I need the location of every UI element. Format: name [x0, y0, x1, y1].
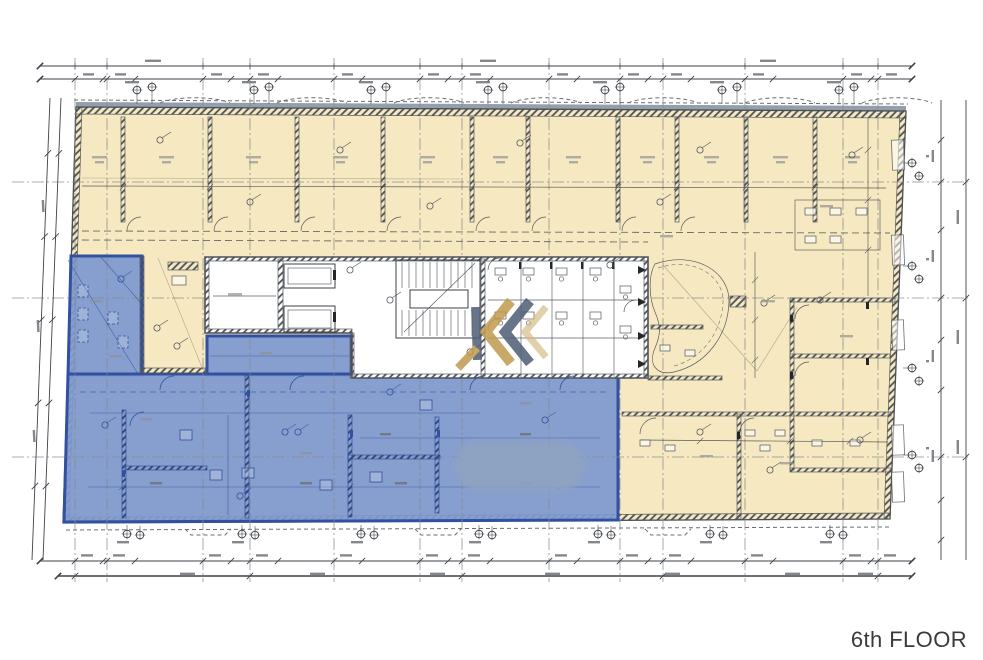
dimension-text-smudge [150, 482, 162, 484]
blue-zone-core-band [207, 336, 352, 375]
dimension-text-smudge [159, 156, 174, 158]
wc-fixture [556, 268, 567, 275]
door-jamb [350, 430, 353, 437]
dimension-text-smudge [557, 73, 568, 75]
door-jamb [437, 430, 440, 437]
dimension-text-smudge [762, 300, 775, 302]
floor-plan-canvas: 6th FLOOR [0, 0, 983, 660]
partition-wall [381, 117, 385, 222]
wall-hatched [790, 354, 890, 358]
dimension-text-smudge [849, 554, 861, 556]
blue-wall [245, 376, 249, 518]
dimension-text-smudge [665, 573, 680, 575]
fixture [370, 472, 382, 482]
dimension-text-smudge [209, 554, 221, 556]
dimension-text-smudge [336, 161, 345, 163]
dimension-text-smudge [886, 73, 897, 75]
dimension-text-smudge [469, 541, 481, 543]
wall-hatched [350, 333, 354, 378]
fixture [830, 236, 841, 243]
dimension-text-smudge [820, 205, 833, 207]
dimension-text-smudge [858, 573, 873, 575]
dimension-text-smudge [555, 554, 567, 556]
dimension-text-smudge [426, 554, 438, 556]
floor-label: 6th FLOOR [851, 627, 967, 653]
dimension-text-smudge [753, 73, 764, 75]
fixture [805, 236, 816, 243]
canopy-line-bottom [66, 527, 889, 530]
wc-fixture [495, 268, 506, 275]
door-jamb [247, 390, 250, 397]
dimension-text-smudge [820, 541, 832, 543]
dimension-text-smudge [92, 156, 107, 158]
dimension-text-smudge [493, 156, 508, 158]
dim-line-left-2 [43, 98, 61, 560]
furniture [108, 312, 118, 324]
fixture [812, 440, 822, 446]
dimension-text-smudge [926, 447, 929, 449]
dimension-text-smudge [423, 161, 432, 163]
dimension-text-smudge [180, 573, 195, 575]
dimension-text-smudge [145, 60, 161, 62]
dimension-text-smudge [95, 161, 104, 163]
wall-hatched [622, 412, 891, 416]
window-well [415, 529, 461, 535]
door-jamb [866, 302, 869, 309]
dimension-text-smudge [260, 352, 272, 354]
dimension-text-smudge [359, 81, 373, 83]
fixture [665, 445, 675, 451]
dimension-text-smudge [776, 161, 785, 163]
dimension-text-smudge [211, 73, 222, 75]
dimension-text-smudge [300, 482, 312, 484]
dimension-text-smudge [704, 156, 719, 158]
dimension-text-smudge [428, 73, 439, 75]
dimension-text-smudge [957, 210, 959, 224]
dimension-text-smudge [115, 73, 126, 75]
wall-hatched [790, 414, 794, 470]
door-jamb [866, 358, 869, 365]
dimension-text-smudge [932, 150, 934, 162]
dimension-text-smudge [569, 161, 578, 163]
wall-hatched [644, 257, 648, 378]
window-bay [891, 320, 904, 350]
dimension-text-smudge [333, 156, 348, 158]
door-jamb [122, 470, 125, 477]
fixture [640, 440, 650, 446]
dimension-text-smudge [430, 573, 445, 575]
dimension-text-smudge [626, 554, 638, 556]
dimension-text-smudge [125, 81, 139, 83]
dimension-text-smudge [228, 293, 242, 295]
partition-wall [526, 117, 530, 222]
wc-fixture [620, 286, 631, 293]
furniture [78, 308, 88, 320]
canopy-bump [862, 98, 932, 103]
fixture [856, 208, 867, 215]
canopy-bump [277, 98, 347, 103]
wall-hatched [205, 257, 209, 333]
dimension-text-smudge [232, 541, 244, 543]
dimension-text-smudge [926, 360, 929, 362]
dimension-text-smudge [700, 455, 713, 457]
dimension-text-smudge [351, 541, 363, 543]
dimension-text-smudge [593, 81, 607, 83]
dimension-text-smudge [926, 155, 929, 157]
fixture [745, 430, 755, 436]
dimension-text-smudge [496, 161, 505, 163]
partition-wall [208, 117, 212, 222]
fixture [420, 400, 432, 410]
dimension-text-smudge [249, 161, 258, 163]
wc-fixture [620, 326, 631, 333]
dimension-text-smudge [342, 73, 353, 75]
dimension-text-smudge [140, 418, 152, 420]
dimension-text-smudge [588, 541, 600, 543]
dimension-text-smudge [751, 554, 763, 556]
window-bay [891, 235, 904, 265]
dimension-text-smudge [926, 258, 929, 260]
dimension-text-smudge [545, 573, 560, 575]
dimension-text-smudge [785, 573, 800, 575]
fixture [775, 430, 785, 436]
partition-wall [744, 117, 748, 222]
dimension-text-smudge [932, 250, 934, 262]
dimension-text-smudge [851, 73, 862, 75]
dimension-text-smudge [700, 541, 712, 543]
door-jamb [790, 315, 793, 322]
dimension-text-smudge [258, 73, 269, 75]
dimension-text-smudge [640, 156, 655, 158]
dimension-text-smudge [566, 156, 581, 158]
dimension-text-smudge [932, 350, 934, 362]
partition-wall [470, 117, 474, 222]
wc-fixture [590, 268, 601, 275]
dimension-text-smudge [83, 73, 94, 75]
window-bay [891, 472, 904, 502]
dimension-text-smudge [760, 60, 776, 62]
dimension-text-smudge [480, 60, 496, 62]
dimension-text-smudge [246, 156, 261, 158]
partition-wall [813, 117, 817, 222]
door-jamb [519, 262, 522, 269]
blue-wall [122, 410, 126, 518]
partition-wall [616, 117, 620, 222]
window-bay [891, 425, 904, 455]
dimension-text-smudge [380, 433, 391, 435]
strip-wall [140, 256, 144, 372]
window-well [645, 529, 691, 535]
door-jamb [550, 262, 553, 269]
dimension-text-smudge [110, 355, 122, 357]
door-jamb [790, 372, 793, 379]
fixture [210, 470, 222, 480]
column [730, 296, 746, 307]
wall-hatched [790, 468, 891, 472]
curved-room-wall [651, 325, 703, 329]
furniture [78, 330, 88, 342]
dimension-text-smudge [90, 300, 102, 302]
wc-fixture [590, 312, 601, 319]
floor-plan-drawing [0, 0, 983, 660]
dimension-text-smudge [773, 156, 788, 158]
wall-hatched [790, 298, 895, 302]
dimension-text-smudge [827, 81, 841, 83]
dimension-text-smudge [81, 554, 93, 556]
dimension-text-smudge [707, 161, 716, 163]
wc-fixture [556, 312, 567, 319]
fixture [242, 468, 254, 478]
dimension-text-smudge [468, 554, 480, 556]
dimension-text-smudge [628, 73, 639, 75]
elevator-door-jamb [333, 270, 336, 280]
dimension-text-smudge [660, 235, 673, 237]
fixture [180, 430, 192, 440]
fixture [660, 345, 670, 351]
dimension-text-smudge [957, 330, 959, 344]
dimension-text-smudge [340, 554, 352, 556]
dimension-text-smudge [840, 335, 853, 337]
fixture [830, 208, 841, 215]
fixture [760, 445, 770, 451]
dimension-text-smudge [848, 161, 857, 163]
dimension-text-smudge [162, 161, 171, 163]
dimension-text-smudge [671, 73, 682, 75]
furniture [118, 336, 128, 348]
blur-redaction [455, 441, 585, 491]
dimension-text-smudge [33, 430, 36, 442]
dimension-text-smudge [710, 81, 724, 83]
dimension-text-smudge [476, 81, 490, 83]
partition-wall [121, 117, 125, 222]
fixture [320, 480, 332, 490]
furniture [78, 285, 88, 297]
dimension-text-smudge [300, 452, 312, 454]
door-jamb [737, 432, 740, 439]
strip-fixture [168, 262, 198, 270]
dimension-text-smudge [520, 433, 531, 435]
redaction-blob [455, 441, 585, 491]
core-wall [278, 259, 283, 329]
dimension-text-smudge [310, 573, 325, 575]
wc-fixture [523, 268, 534, 275]
dimension-text-smudge [256, 554, 268, 556]
dimension-text-smudge [884, 554, 896, 556]
strip-fixture [172, 276, 186, 285]
blue-wall [125, 466, 207, 470]
dimension-text-smudge [957, 440, 959, 454]
door-jamb [581, 262, 584, 269]
dimension-text-smudge [780, 462, 793, 464]
dimension-text-smudge [395, 482, 407, 484]
dimension-text-smudge [643, 161, 652, 163]
dim-line-left-1 [32, 98, 50, 560]
elevator-door-jamb [333, 312, 336, 322]
partition-wall [675, 117, 679, 222]
partition-wall [295, 117, 299, 222]
wall-hatched [352, 374, 648, 378]
dimension-text-smudge [470, 73, 481, 75]
dimension-text-smudge [932, 450, 934, 462]
dimension-text-smudge [113, 554, 125, 556]
dimension-text-smudge [520, 402, 532, 404]
dimension-text-smudge [420, 156, 435, 158]
dimension-text-smudge [117, 541, 129, 543]
fixture [805, 208, 816, 215]
dimension-text-smudge [42, 200, 45, 212]
window-bay [891, 140, 904, 170]
canopy-bump [745, 98, 815, 103]
strip-wall [142, 368, 205, 373]
dimension-text-smudge [242, 81, 256, 83]
blue-wall [348, 455, 440, 459]
wall-hatched [648, 376, 722, 380]
dimension-text-smudge [669, 554, 681, 556]
fixture [685, 350, 695, 356]
